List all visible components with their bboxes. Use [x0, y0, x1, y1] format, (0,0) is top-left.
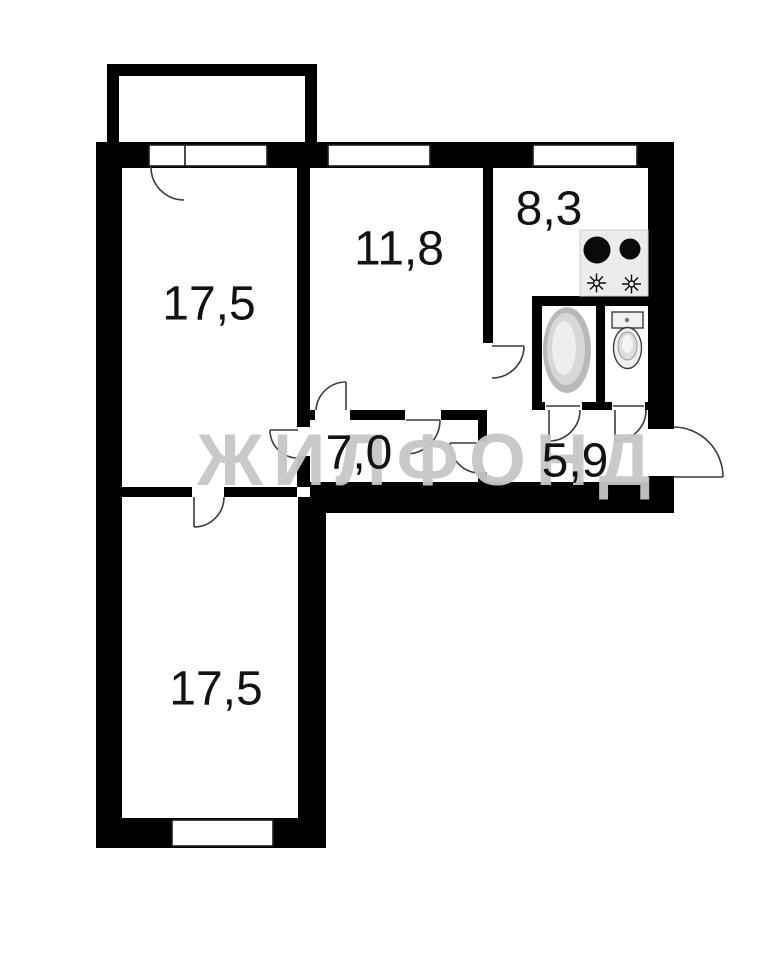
window-kitchen	[533, 145, 637, 166]
room-label-hallway: 7,0	[326, 426, 393, 481]
stove-icon	[580, 230, 648, 296]
stove-plate-small	[620, 239, 641, 260]
door-arc	[492, 346, 524, 378]
room-label-bottom-left: 17,5	[169, 662, 262, 717]
room-label-top-left: 17,5	[162, 277, 255, 332]
wall-room2-kitchen	[483, 168, 493, 343]
door-room-bottom-left	[194, 497, 224, 527]
stove-plate-large	[584, 237, 611, 264]
door-arc	[674, 427, 723, 477]
door-room-middle	[316, 382, 346, 410]
wall-bath-toilet	[596, 296, 605, 410]
wall-bathroom-left	[532, 296, 542, 410]
room-label-hall-entry: 5,9	[542, 434, 609, 489]
balcony	[107, 64, 317, 146]
balcony-wall-left	[107, 64, 119, 146]
entrance-door-icon	[674, 427, 723, 477]
toilet-button	[625, 318, 629, 322]
door-balcony	[151, 167, 184, 200]
window-bottom	[172, 820, 273, 846]
door-arc	[316, 382, 346, 410]
floorplan-page: ЖИЛФОНД 17,5 11,8 8,3 7,0 5,9 17,5	[0, 0, 764, 960]
bathtub-icon	[543, 307, 591, 393]
window-balcony-section	[149, 145, 267, 166]
wall-left	[96, 142, 122, 848]
balcony-wall-top	[107, 64, 317, 76]
room-label-kitchen: 8,3	[516, 182, 583, 237]
door-arc	[194, 497, 224, 527]
balcony-wall-right	[305, 64, 317, 146]
room-label-middle: 11,8	[354, 222, 444, 277]
door-arc	[151, 167, 184, 200]
wall-bathroom-top	[532, 296, 648, 306]
wall-bottom-section-right	[298, 497, 326, 848]
door-kitchen	[492, 346, 524, 378]
window-room-middle	[328, 145, 430, 166]
toilet-icon	[612, 312, 643, 369]
